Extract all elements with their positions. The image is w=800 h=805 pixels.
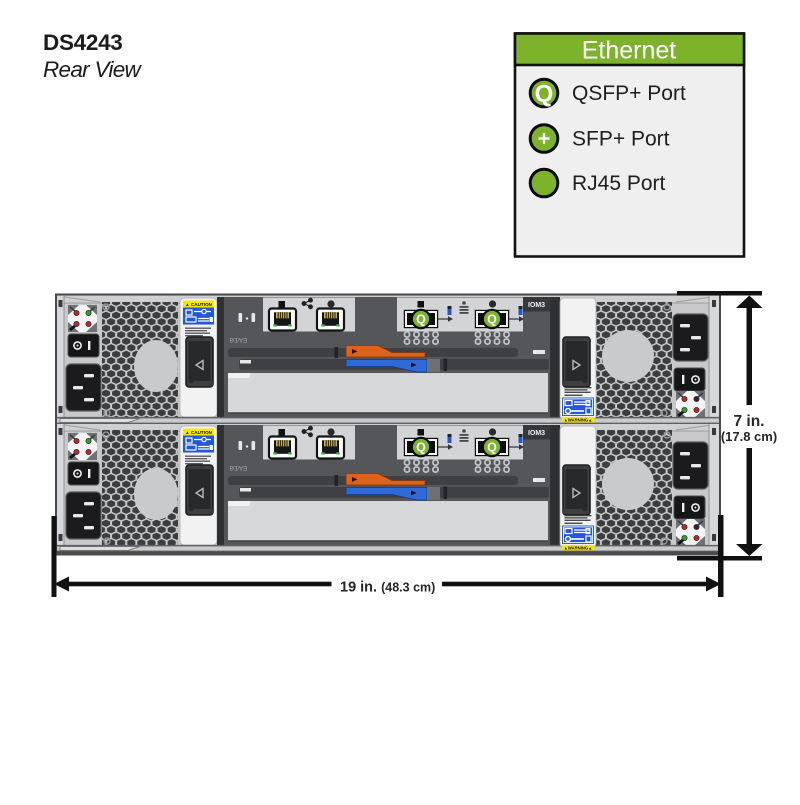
svg-text:QSFP+ Port: QSFP+ Port xyxy=(572,82,686,105)
svg-text:Q: Q xyxy=(535,81,554,108)
svg-text:Q: Q xyxy=(487,440,497,454)
svg-text:▲WARNING▲: ▲WARNING▲ xyxy=(564,417,593,422)
svg-text:▲ CAUTION: ▲ CAUTION xyxy=(185,302,212,307)
svg-text:Q: Q xyxy=(416,312,426,326)
svg-text:IOM3: IOM3 xyxy=(528,430,545,437)
svg-text:▲ CAUTION: ▲ CAUTION xyxy=(185,430,212,435)
svg-text:▲WARNING▲: ▲WARNING▲ xyxy=(564,545,593,550)
svg-text:Ethernet: Ethernet xyxy=(582,37,677,65)
svg-text:7 in.: 7 in. xyxy=(733,413,764,430)
svg-text:EA/D8: EA/D8 xyxy=(229,464,247,470)
svg-text:RJ45 Port: RJ45 Port xyxy=(572,172,666,195)
svg-text:Rear View: Rear View xyxy=(43,57,143,82)
svg-text:EA/D8: EA/D8 xyxy=(229,336,247,342)
svg-text:19 in. (48.3 cm): 19 in. (48.3 cm) xyxy=(340,580,435,596)
svg-text:Q: Q xyxy=(487,312,497,326)
svg-text:Q: Q xyxy=(416,440,426,454)
svg-text:(17.8 cm): (17.8 cm) xyxy=(721,429,777,444)
svg-text:SFP+ Port: SFP+ Port xyxy=(572,128,670,151)
svg-text:DS4243: DS4243 xyxy=(43,30,123,55)
svg-text:IOM3: IOM3 xyxy=(528,302,545,309)
